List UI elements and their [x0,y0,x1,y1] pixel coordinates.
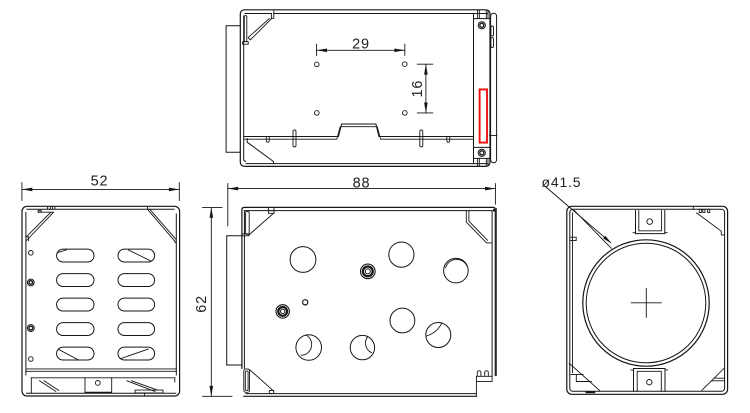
svg-text:29: 29 [352,36,370,52]
svg-text:16: 16 [410,80,426,98]
svg-text:ø41.5: ø41.5 [542,174,582,190]
svg-text:52: 52 [91,173,109,189]
svg-text:62: 62 [194,295,210,313]
svg-text:88: 88 [353,175,371,191]
